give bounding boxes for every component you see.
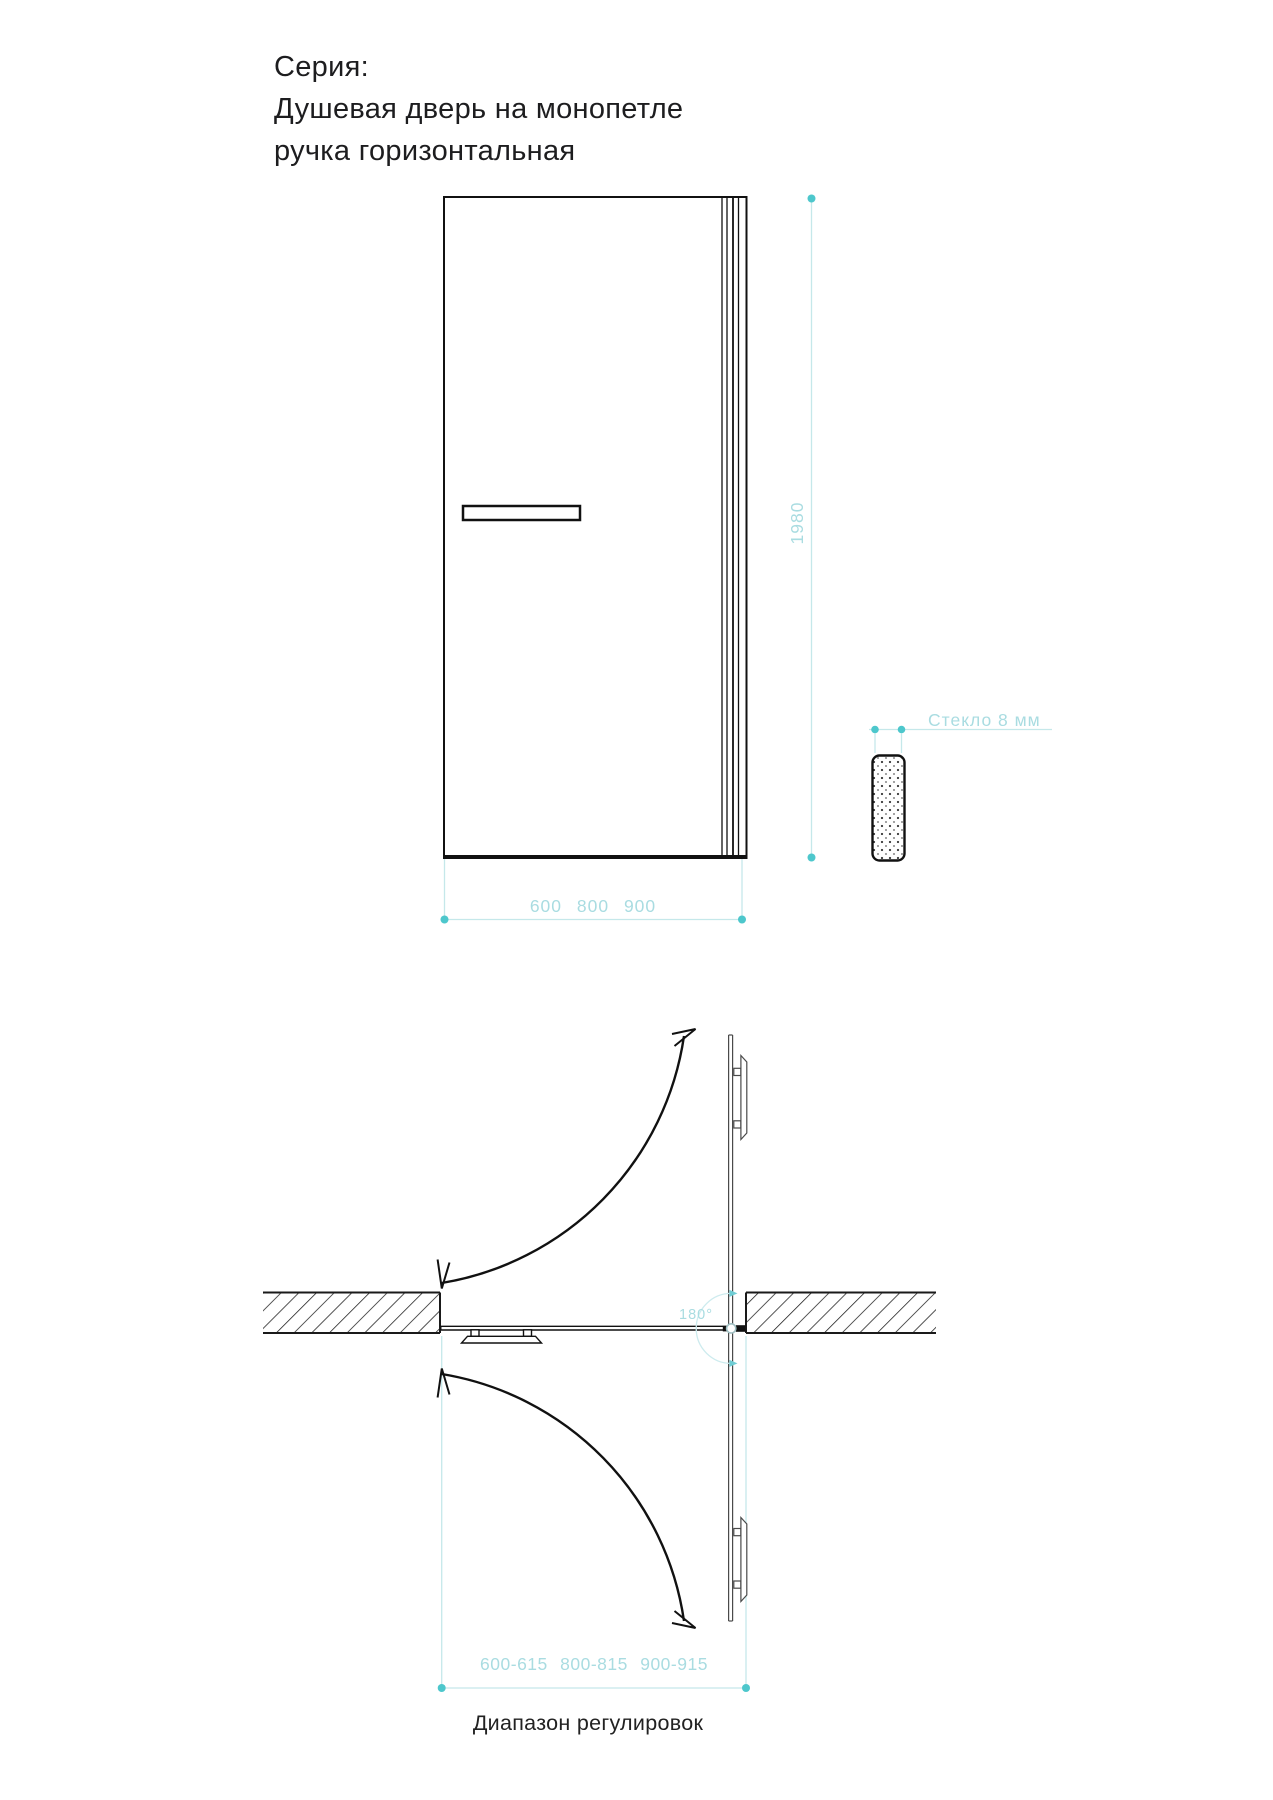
- range-dimension-label: 600-615 800-815 900-915: [480, 1654, 708, 1674]
- open-handle-post-top-2: [734, 1121, 741, 1128]
- open-handle-post-top-1: [734, 1068, 741, 1075]
- open-handle-post-bottom-2: [734, 1581, 741, 1588]
- left-wall-hatch: [263, 1293, 440, 1334]
- height-dimension-dot-top: [808, 195, 816, 203]
- handle-post-left-plan: [471, 1330, 479, 1337]
- upper-swing-arc: [438, 1029, 696, 1289]
- right-wall: [746, 1293, 936, 1334]
- upper-arc-path: [442, 1036, 684, 1283]
- glass-section-profile: [873, 756, 905, 861]
- rotation-arc-arrow-top: [730, 1290, 738, 1297]
- range-dimension-dot-left: [438, 1684, 446, 1692]
- right-wall-hatch: [746, 1293, 936, 1334]
- height-dimension-label: 1980: [787, 502, 807, 545]
- left-wall: [263, 1293, 440, 1334]
- range-dimension-dot-right: [742, 1684, 750, 1692]
- handle-post-right-plan: [524, 1330, 532, 1337]
- plan-view: 180° 600-615 800-815 900-915: [263, 1029, 936, 1692]
- handle-plate-plan: [462, 1336, 542, 1343]
- door-closed-plan: [441, 1326, 723, 1343]
- door-panel-outline: [444, 197, 747, 858]
- glass-dimension-dot-left: [871, 726, 879, 734]
- open-handle-bar-top: [741, 1056, 747, 1140]
- glass-thickness-label: Стекло 8 мм: [928, 710, 1041, 730]
- width-dimension-label: 600 800 900: [530, 896, 656, 916]
- hinge-wall-clamp: [736, 1325, 746, 1332]
- lower-arc-arrow-wall: [438, 1369, 450, 1398]
- lower-arc-path: [442, 1374, 684, 1621]
- upper-arc-arrow-wall: [438, 1260, 450, 1289]
- rotation-angle-label: 180°: [679, 1307, 713, 1323]
- height-dimension-dot-bottom: [808, 854, 816, 862]
- horizontal-handle: [463, 506, 580, 520]
- open-handle-post-bottom-1: [734, 1529, 741, 1536]
- plan-view-caption: Диапазон регулировок: [437, 1711, 739, 1736]
- glass-cross-section: Стекло 8 мм: [869, 710, 1052, 861]
- rotation-arc-arrow-bottom: [730, 1360, 738, 1367]
- width-dimension: 600 800 900: [441, 859, 747, 924]
- front-view: 1980 600 800 900: [441, 195, 816, 924]
- width-dimension-dot-left: [441, 916, 449, 924]
- width-dimension-dot-right: [738, 916, 746, 924]
- technical-drawing: 1980 600 800 900 Стекло 8 мм: [0, 0, 1273, 1800]
- glass-dimension-dot-right: [898, 726, 906, 734]
- height-dimension: 1980: [787, 195, 816, 862]
- range-dimension: 600-615 800-815 900-915: [438, 1654, 750, 1692]
- hinge-pivot-circle: [727, 1324, 736, 1333]
- lower-swing-arc: [438, 1369, 696, 1629]
- drawing-sheet: Серия: Душевая дверь на монопетле ручка …: [0, 0, 1273, 1800]
- mono-hinge: [723, 1324, 746, 1333]
- open-handle-bar-bottom: [741, 1518, 747, 1602]
